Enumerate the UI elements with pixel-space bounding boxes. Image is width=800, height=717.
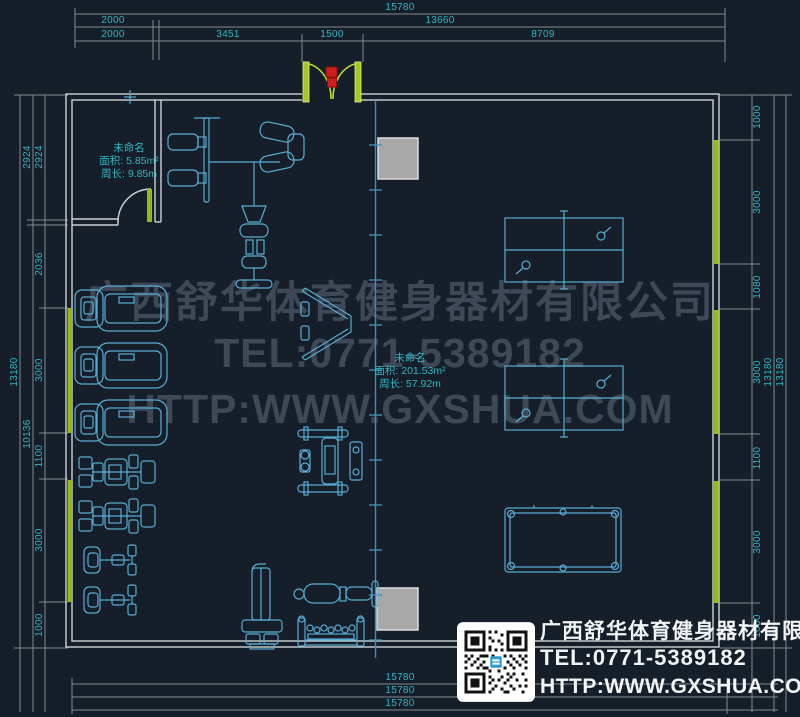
multi-gym-machine-icon: [168, 118, 304, 288]
column: [378, 138, 418, 179]
elliptical-icon: [79, 499, 155, 533]
treadmill-icon: [75, 343, 167, 388]
exercise-bike-icon: [84, 545, 136, 575]
column: [377, 588, 418, 630]
partition-door-jamb: [147, 189, 152, 222]
weight-station-icon: [242, 564, 282, 649]
small-room-label: 未命名 面积: 5.85m² 周长: 9.85m: [90, 142, 168, 181]
main-room-perimeter: 周长: 57.92m: [352, 378, 468, 391]
wall-marker-icon: [124, 90, 136, 104]
small-room-perimeter: 周长: 9.85m: [90, 168, 168, 181]
main-room-area: 面积: 201.53m²: [352, 365, 468, 378]
situp-board-icon: [301, 288, 351, 360]
table-tennis-table-icon: [505, 359, 623, 437]
qr-code: [457, 622, 535, 702]
treadmill-icon: [75, 400, 167, 445]
titleblock-tel: TEL:0771-5389182: [540, 645, 747, 671]
main-room-label: 未命名 面积: 201.53m² 周长: 57.92m: [352, 352, 468, 391]
table-tennis-table-icon: [505, 211, 623, 289]
cad-floor-plan: 广西舒华体育健身器材有限公司 TEL:0771-5389182 HTTP:WWW…: [0, 0, 800, 717]
door-marker-icon: [326, 67, 337, 87]
elliptical-icon: [79, 455, 155, 489]
small-room-name: 未命名: [90, 142, 168, 155]
bench-press-icon: [298, 427, 362, 495]
titleblock-company: 广西舒华体育健身器材有限公司: [540, 615, 800, 645]
pool-table-icon: [505, 505, 621, 572]
exercise-bike-icon: [84, 585, 136, 615]
titleblock-url: HTTP:WWW.GXSHUA.COM: [540, 675, 800, 699]
small-room-area: 面积: 5.85m²: [90, 155, 168, 168]
treadmill-icon: [75, 286, 167, 331]
bench-icon: [294, 581, 378, 607]
main-room-name: 未命名: [352, 352, 468, 365]
